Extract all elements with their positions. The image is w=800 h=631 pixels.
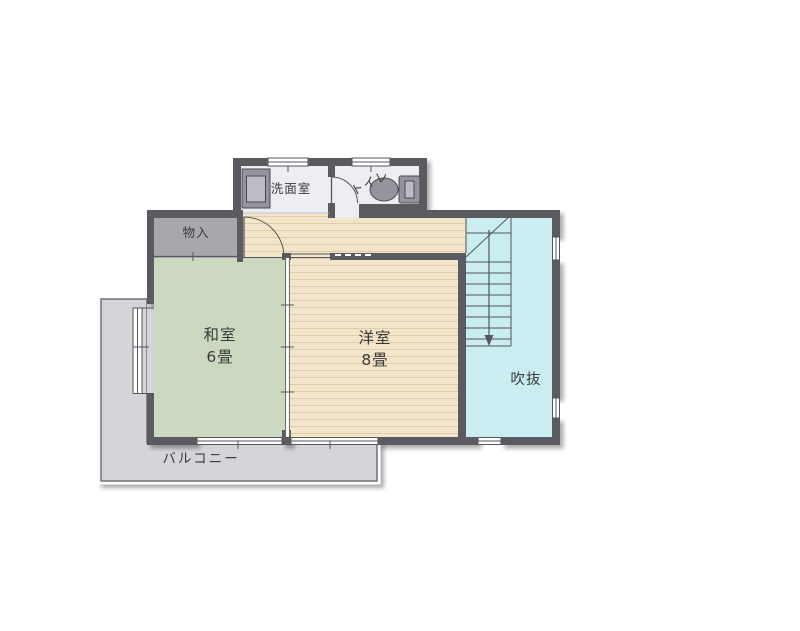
western-room-label: 洋室 (358, 329, 391, 347)
wall-segment (552, 418, 560, 445)
atrium-floor (466, 217, 552, 437)
wall-segment (147, 437, 197, 445)
window (478, 438, 501, 445)
washroom-label: 洗面室 (271, 181, 312, 196)
wall-segment (378, 437, 478, 445)
japanese-room-size: 6畳 (206, 348, 233, 366)
toilet-door-gap (335, 204, 359, 218)
wall-segment (237, 212, 243, 262)
vanity-unit (242, 169, 270, 208)
wall-segment (233, 158, 241, 215)
floor-plan-page: 物入 洗面室 トイレ 和室 6畳 洋室 8畳 吹抜 バルコニー (0, 0, 800, 631)
wall-segment (328, 163, 335, 177)
floor-plan-drawing: 物入 洗面室 トイレ 和室 6畳 洋室 8畳 吹抜 バルコニー (0, 0, 800, 631)
wall-segment (328, 203, 335, 218)
wall-segment (552, 260, 560, 398)
wall-segment (147, 210, 154, 304)
balcony-label: バルコニー (162, 451, 239, 467)
wall-segment (359, 210, 560, 218)
western-room-size: 8畳 (361, 351, 388, 369)
japanese-room-label: 和室 (203, 326, 236, 344)
closet-label: 物入 (182, 225, 209, 240)
building-structure (147, 158, 560, 445)
wall-segment (147, 210, 243, 218)
window (553, 398, 560, 418)
wall-segment (458, 253, 466, 437)
atrium-label: 吹抜 (511, 371, 542, 388)
window (553, 237, 560, 260)
wall-segment (282, 437, 291, 445)
wall-segment (501, 437, 560, 445)
wall-segment (552, 210, 560, 237)
wall-segment (359, 204, 427, 211)
